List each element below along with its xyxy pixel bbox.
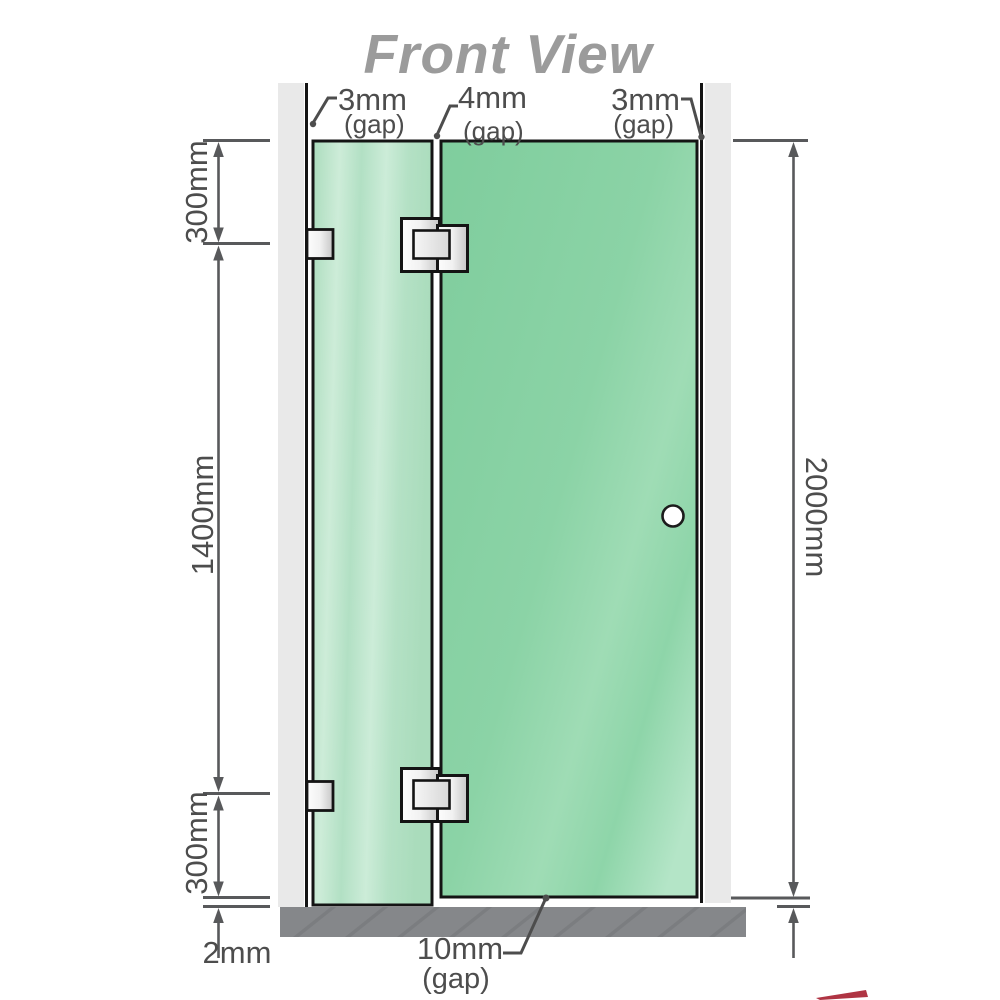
- gap-callout-top-right: 3mm (gap): [611, 82, 705, 140]
- top-wall-bracket: [307, 230, 333, 259]
- gap-top-right-unit: (gap): [613, 109, 674, 139]
- gap-callout-top-left: 3mm (gap): [310, 82, 407, 139]
- gap-top-middle-unit: (gap): [463, 116, 524, 146]
- top-hinge: [402, 219, 468, 272]
- left-wall-channel: [278, 83, 307, 907]
- dim-left-top-label: 300mm: [179, 140, 214, 243]
- gap-bottom-unit: (gap): [422, 963, 490, 995]
- dim-left-middle-label: 1400mm: [185, 455, 220, 576]
- right-wall-channel: [702, 83, 732, 903]
- dim-left-bottom-label: 300mm: [179, 791, 214, 894]
- door-handle-knob-icon: [663, 506, 684, 527]
- dim-2mm-label: 2mm: [203, 935, 272, 970]
- right-dimension: [731, 141, 810, 959]
- dim-right-total-label: 2000mm: [799, 457, 834, 578]
- red-corner-mark: [816, 990, 868, 1000]
- gap-bottom-value: 10mm: [417, 931, 503, 966]
- gap-top-left-unit: (gap): [344, 109, 405, 139]
- gap-top-middle-value: 4mm: [458, 80, 527, 115]
- right-glass-door-panel: [441, 141, 697, 897]
- gap-callout-top-middle: 4mm (gap): [434, 80, 527, 146]
- front-view-diagram: Front View: [0, 0, 1000, 1000]
- bottom-hinge: [402, 769, 468, 822]
- diagram-canvas: Front View: [0, 0, 1000, 1000]
- page-title: Front View: [363, 23, 654, 85]
- floor-base: [280, 905, 752, 940]
- bottom-wall-bracket: [307, 782, 333, 811]
